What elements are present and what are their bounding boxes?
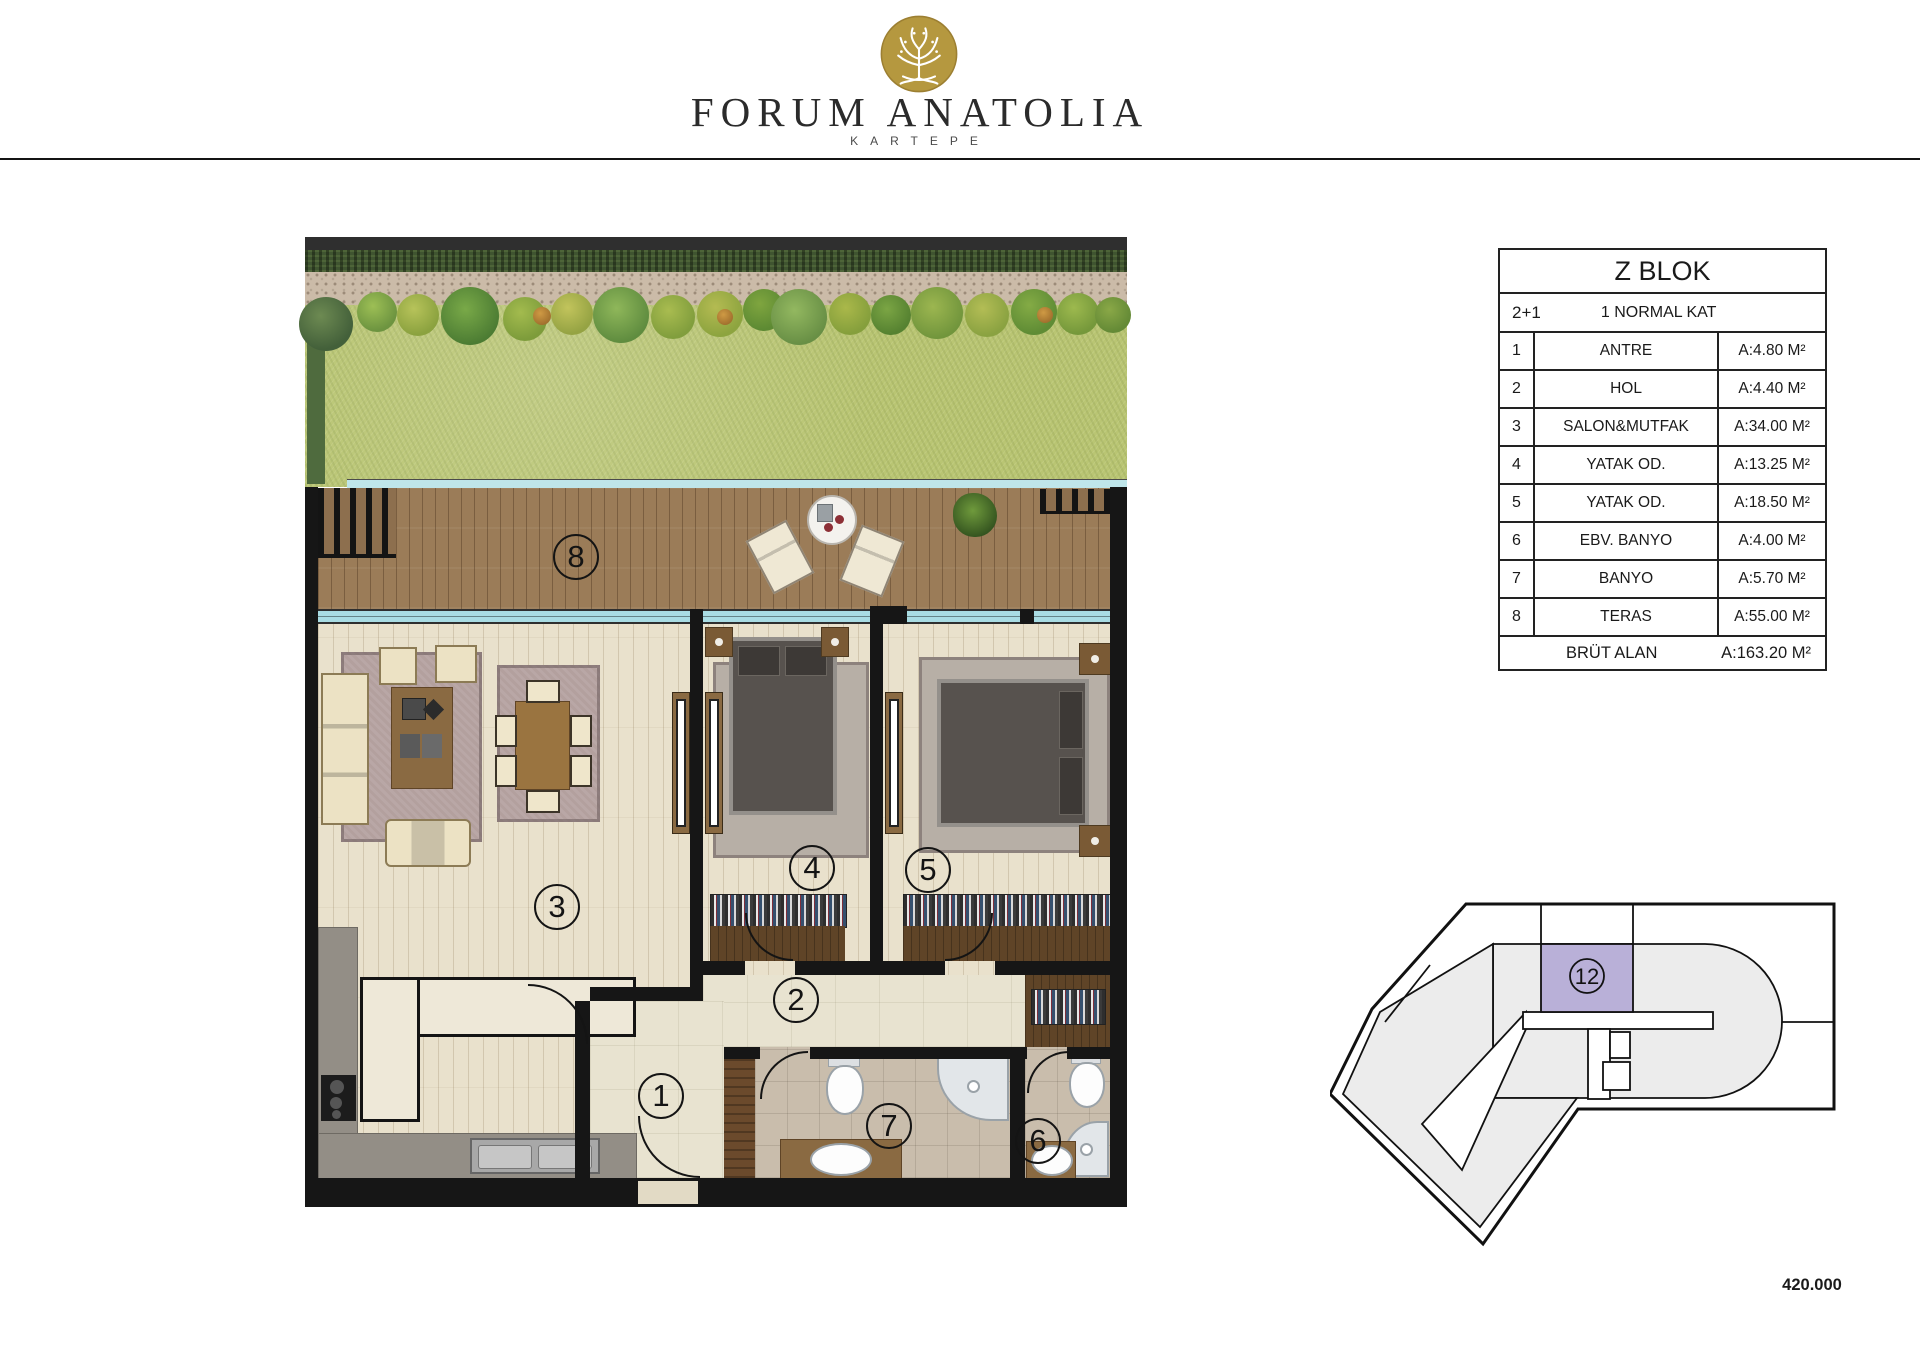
unit-type: 2+1 <box>1512 303 1541 323</box>
key-plan: 12 <box>1330 872 1850 1262</box>
row-area: A:18.50 M² <box>1717 485 1825 521</box>
wall-bath-top <box>1067 1047 1110 1059</box>
cushion <box>422 734 442 758</box>
row-no: 4 <box>1500 447 1535 483</box>
row-area: A:13.25 M² <box>1717 447 1825 483</box>
table-row: 5 YATAK OD. A:18.50 M² <box>1500 485 1825 523</box>
pillow <box>1059 757 1083 815</box>
wall <box>1020 609 1034 624</box>
window-band <box>318 609 1110 624</box>
floor-label: 1 NORMAL KAT <box>1601 304 1717 322</box>
wall-right <box>1110 487 1127 1207</box>
row-area: A:34.00 M² <box>1717 409 1825 445</box>
unit-info-table: Z BLOK 2+1 1 NORMAL KAT 1 ANTRE A:4.80 M… <box>1498 248 1827 671</box>
wall-entry-top <box>590 987 703 1001</box>
dining-table <box>515 701 570 790</box>
bush <box>357 292 397 332</box>
bush <box>1037 307 1053 323</box>
wall-hall-top <box>795 961 945 975</box>
brand-name: FORUM ANATOLIA <box>620 88 1220 136</box>
total-label: BRÜT ALAN <box>1566 644 1657 663</box>
table-row: 1 ANTRE A:4.80 M² <box>1500 333 1825 371</box>
row-name: SALON&MUTFAK <box>1535 409 1717 445</box>
dining-chair <box>526 790 560 813</box>
bush <box>533 307 551 325</box>
entry-bath-wood-panel <box>724 1059 755 1178</box>
room-label-hall: 2 <box>773 977 819 1023</box>
table-block-title: Z BLOK <box>1500 250 1825 294</box>
room-label-banyo: 7 <box>866 1103 912 1149</box>
table-row: 4 YATAK OD. A:13.25 M² <box>1500 447 1825 485</box>
sofa <box>321 673 369 825</box>
dining-chair <box>495 715 517 747</box>
bush <box>1095 297 1131 333</box>
nightstand <box>1079 825 1111 857</box>
bush <box>551 293 593 335</box>
decor <box>423 699 444 720</box>
bush <box>593 287 649 343</box>
table-total-row: BRÜT ALAN A:163.20 M² <box>1500 637 1825 669</box>
garden-left-tree-trunk <box>307 332 325 484</box>
deck-fence-left <box>318 488 396 558</box>
kitchen-island-leg <box>360 977 420 1122</box>
row-area: A:4.00 M² <box>1717 523 1825 559</box>
row-no: 5 <box>1500 485 1535 521</box>
deck-table <box>807 495 857 545</box>
pouf <box>435 645 477 683</box>
row-name: YATAK OD. <box>1535 447 1717 483</box>
room-label-text: 5 <box>919 852 936 888</box>
room-label-text: 6 <box>1029 1123 1046 1159</box>
row-area: A:4.40 M² <box>1717 371 1825 407</box>
row-no: 8 <box>1500 599 1535 635</box>
wall-bottom <box>305 1178 1127 1207</box>
table-row: 8 TERAS A:55.00 M² <box>1500 599 1825 637</box>
cushion <box>400 734 420 758</box>
wall-bath-top <box>724 1047 760 1059</box>
bush <box>397 294 439 336</box>
bush <box>717 309 733 325</box>
bedroom5-wardrobe <box>903 926 1110 961</box>
brand-logo <box>879 14 959 94</box>
cup <box>824 523 833 532</box>
header-divider <box>0 158 1920 160</box>
wall-bath-top <box>810 1047 1027 1059</box>
pillow <box>738 646 780 676</box>
table-subheader: 2+1 1 NORMAL KAT <box>1500 294 1825 333</box>
sink-basin <box>478 1145 532 1169</box>
row-no: 3 <box>1500 409 1535 445</box>
row-name: EBV. BANYO <box>1535 523 1717 559</box>
wall-hall-top <box>995 961 1110 975</box>
bush <box>299 297 353 351</box>
row-name: ANTRE <box>1535 333 1717 369</box>
row-no: 6 <box>1500 523 1535 559</box>
bush <box>829 293 871 335</box>
table-row: 3 SALON&MUTFAK A:34.00 M² <box>1500 409 1825 447</box>
brand-location: KARTEPE <box>620 134 1220 148</box>
room-label-text: 4 <box>803 850 820 886</box>
table-row: 6 EBV. BANYO A:4.00 M² <box>1500 523 1825 561</box>
garden-hedge <box>305 250 1127 272</box>
burner <box>330 1097 342 1109</box>
bedroom5-wardrobe-clothes <box>903 894 1112 928</box>
room-label-ebv-banyo: 6 <box>1015 1118 1061 1164</box>
bush <box>965 293 1009 337</box>
row-no: 2 <box>1500 371 1535 407</box>
wall-hall-top <box>703 961 745 975</box>
row-area: A:55.00 M² <box>1717 599 1825 635</box>
tree-of-life-emblem-icon <box>879 14 959 94</box>
row-name: HOL <box>1535 371 1717 407</box>
pillow <box>1059 691 1083 749</box>
radiator <box>672 692 690 834</box>
bedroom4-bed <box>729 637 837 815</box>
row-no: 7 <box>1500 561 1535 597</box>
bush <box>1057 293 1099 335</box>
bush <box>651 295 695 339</box>
pouf <box>379 647 417 685</box>
closet-clothes <box>1031 989 1106 1025</box>
bath7-sink <box>810 1143 872 1176</box>
wall-left <box>305 487 318 1207</box>
bush <box>441 287 499 345</box>
wall-bath7-bath6 <box>1010 1059 1025 1178</box>
room-label-bedroom5: 5 <box>905 847 951 893</box>
dining-chair <box>570 715 592 747</box>
room-label-text: 8 <box>567 539 584 575</box>
price-note: 420.000 <box>1762 1276 1862 1295</box>
toilet <box>826 1065 864 1115</box>
radiator <box>885 692 903 834</box>
bedroom5-bed <box>937 679 1089 827</box>
deck-fence-right <box>1040 489 1110 514</box>
total-area: A:163.20 M² <box>1721 644 1811 663</box>
wall-bed4-bed5 <box>870 624 883 961</box>
armchair <box>385 819 471 867</box>
room-label-salon: 3 <box>534 884 580 930</box>
nightstand <box>1079 643 1111 675</box>
floor-plan: 8 3 4 5 2 1 7 6 <box>305 237 1127 1207</box>
row-name: TERAS <box>1535 599 1717 635</box>
bush <box>871 295 911 335</box>
hall-floor <box>703 975 1025 1047</box>
dining-chair <box>570 755 592 787</box>
radiator <box>705 692 723 834</box>
room-label-text: 7 <box>880 1108 897 1144</box>
potted-plant <box>953 493 997 537</box>
room-label-terrace: 8 <box>553 534 599 580</box>
wall <box>690 609 703 624</box>
row-no: 1 <box>1500 333 1535 369</box>
row-area: A:5.70 M² <box>1717 561 1825 597</box>
tray <box>817 504 833 522</box>
room-label-bedroom4: 4 <box>789 845 835 891</box>
table-row: 7 BANYO A:5.70 M² <box>1500 561 1825 599</box>
key-plan-drawing: 12 <box>1330 872 1850 1262</box>
row-name: YATAK OD. <box>1535 485 1717 521</box>
page: FORUM ANATOLIA KARTEPE <box>0 0 1920 1358</box>
toilet <box>1069 1062 1105 1108</box>
nightstand <box>705 627 733 657</box>
room-label-text: 1 <box>652 1078 669 1114</box>
burner <box>332 1110 341 1119</box>
wall-living-bed4 <box>690 624 703 1001</box>
room-label-text: 3 <box>548 889 565 925</box>
cooktop <box>321 1075 356 1121</box>
table-row: 2 HOL A:4.40 M² <box>1500 371 1825 409</box>
terrace-deck <box>318 488 1127 609</box>
garden-top-wall <box>305 237 1127 250</box>
bush <box>911 287 963 339</box>
row-name: BANYO <box>1535 561 1717 597</box>
room-label-antre: 1 <box>638 1073 684 1119</box>
burner <box>330 1080 344 1094</box>
cup <box>835 515 844 524</box>
nightstand <box>821 627 849 657</box>
row-area: A:4.80 M² <box>1717 333 1825 369</box>
coffee-table <box>391 687 453 789</box>
entry-door-threshold <box>638 1181 698 1204</box>
dining-chair <box>495 755 517 787</box>
dining-chair <box>526 680 560 703</box>
room-label-text: 2 <box>787 982 804 1018</box>
key-plan-unit-number: 12 <box>1575 964 1599 989</box>
bush <box>771 289 827 345</box>
